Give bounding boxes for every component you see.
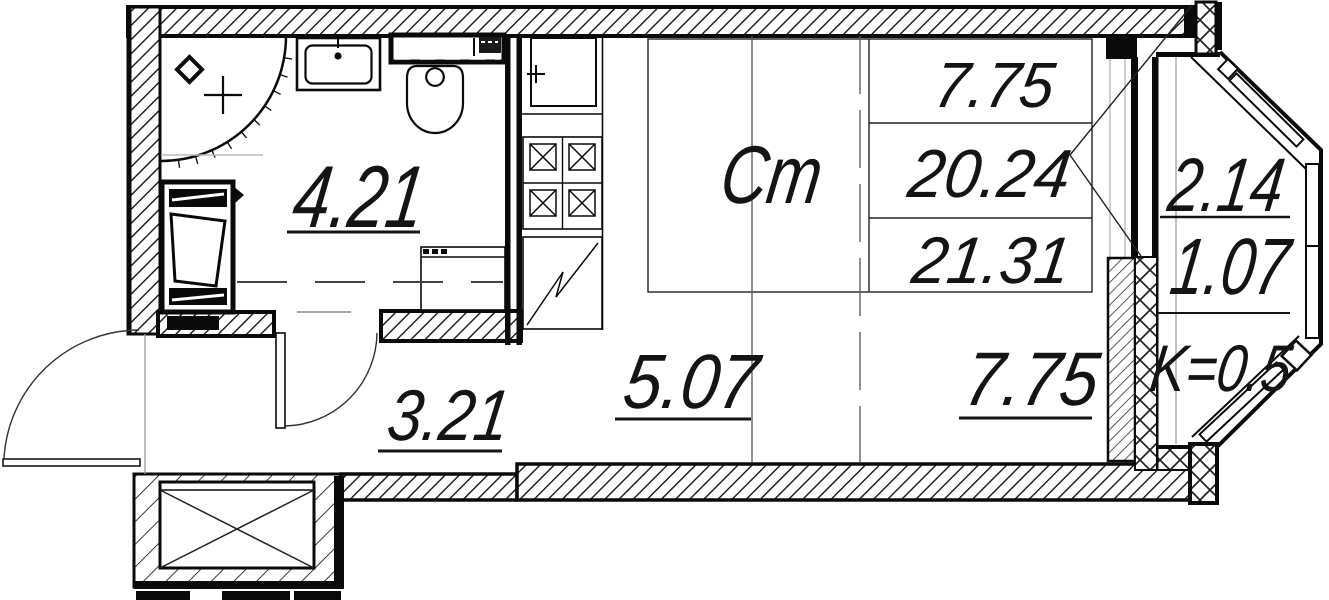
svg-text:K=0.5: K=0.5 [1146,332,1297,406]
svg-text:Ст: Ст [715,129,828,221]
svg-text:1.07: 1.07 [1165,222,1297,312]
svg-text:2.14: 2.14 [1163,143,1290,228]
svg-text:20.24: 20.24 [903,136,1076,212]
svg-text:3.21: 3.21 [383,376,515,456]
svg-text:7.75: 7.75 [930,49,1059,121]
svg-text:5.07: 5.07 [619,339,767,425]
svg-text:7.75: 7.75 [960,337,1105,422]
svg-text:21.31: 21.31 [907,224,1075,298]
